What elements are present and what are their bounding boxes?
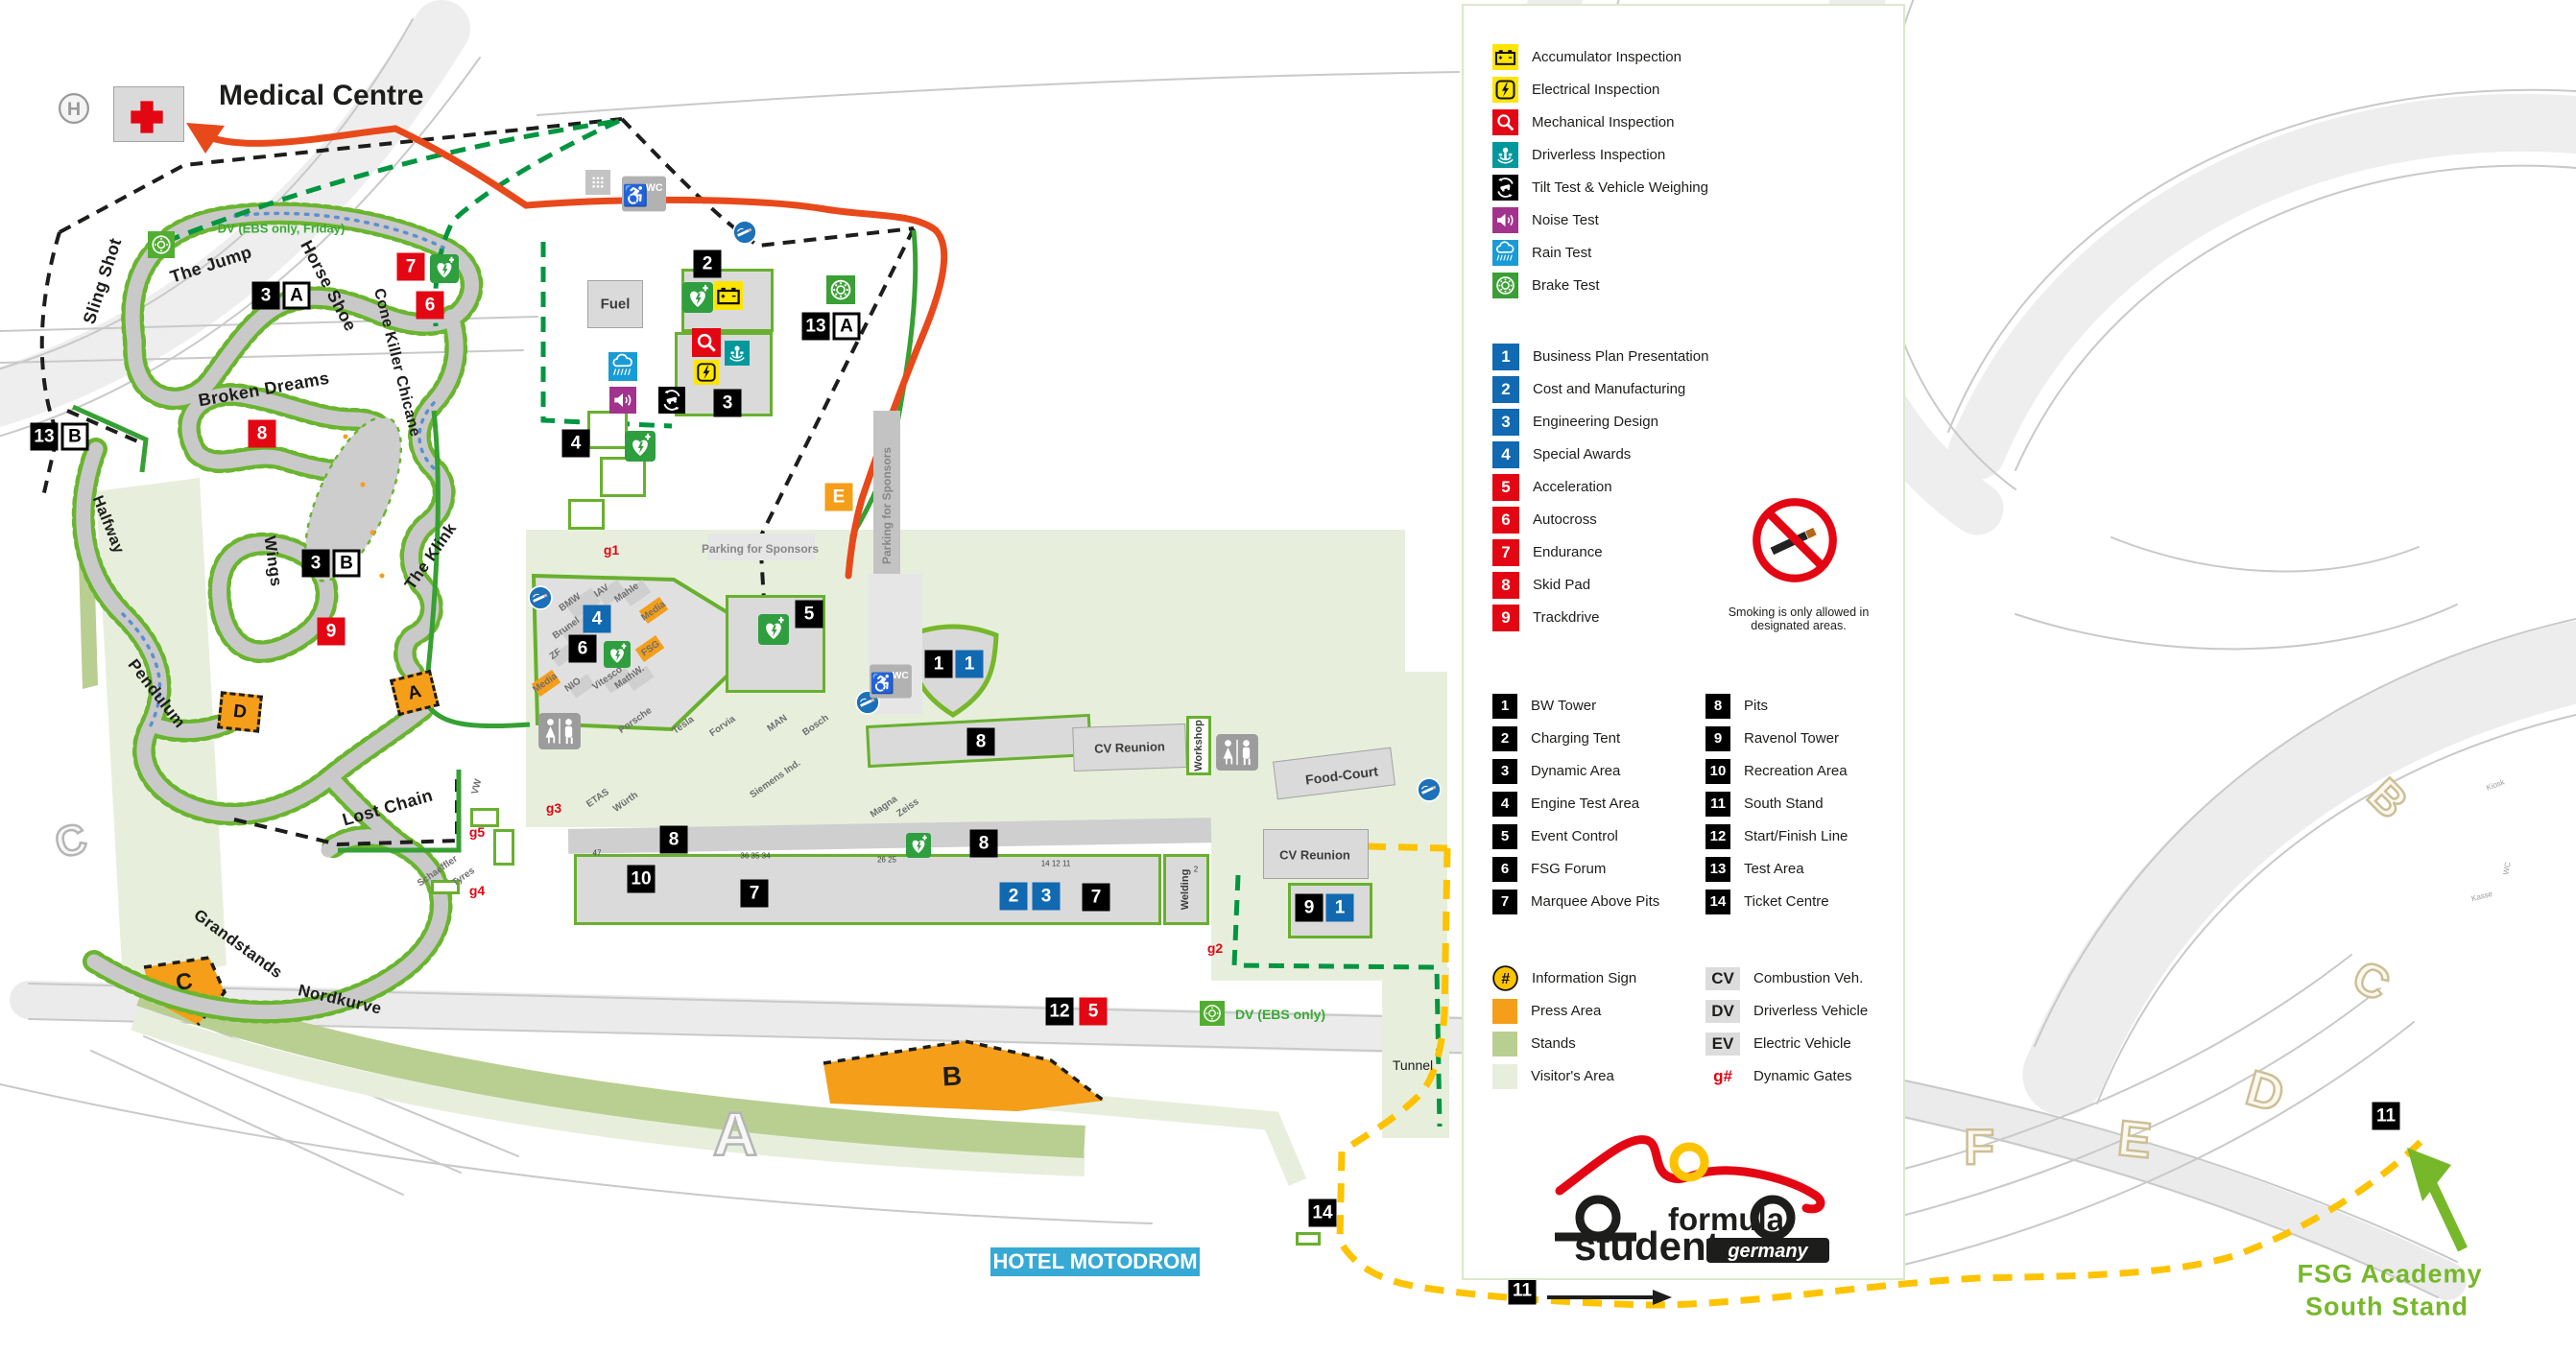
legend-test-accumulator-inspection-label: Accumulator Inspection <box>1532 49 1682 65</box>
legend-location-start-finish-line: 12Start/Finish Line <box>1705 823 1848 849</box>
map-badge-9: 9 <box>318 618 346 646</box>
legend-area-information-sign-label: Information Sign <box>1532 970 1636 986</box>
badge-part-5: 5 <box>1080 998 1108 1026</box>
noise-icon <box>1492 207 1518 233</box>
sponsor-label-forvia: Forvia <box>708 714 738 739</box>
smoking-note: Smoking is only allowed in designated ar… <box>1698 605 1899 632</box>
badge-part-4: 4 <box>584 605 611 633</box>
map-badge-3-b: 3B <box>302 550 361 578</box>
dv-icon <box>1200 1001 1225 1026</box>
badge-part-6: 6 <box>569 635 597 663</box>
map-badge-8: 8 <box>970 830 998 858</box>
badge-part-13: 13 <box>802 313 830 341</box>
legend-location-fsg-forum-label: FSG Forum <box>1531 861 1606 877</box>
badge-part-6: 6 <box>417 292 444 320</box>
location-number-8: 8 <box>1705 694 1730 719</box>
event-number-8: 8 <box>1492 572 1519 599</box>
map-badge-3-a: 3A <box>252 282 311 310</box>
defib-icon <box>758 614 789 645</box>
location-number-5: 5 <box>1492 824 1517 849</box>
legend-test-rain-test-label: Rain Test <box>1532 245 1591 261</box>
info-icon: # <box>1492 965 1518 991</box>
badge-part-2: 2 <box>1000 883 1028 911</box>
legend-area-stands-label: Stands <box>1531 1035 1576 1052</box>
badge-part-10: 10 <box>628 866 656 893</box>
label-lost-chain: Lost Chain <box>340 786 435 831</box>
label-broken-dreams: Broken Dreams <box>197 368 331 412</box>
legend-location-test-area: 13Test Area <box>1705 856 1848 882</box>
legend-event-trackdrive: 9Trackdrive <box>1492 605 1708 630</box>
map-badge-4: 4 <box>562 430 590 458</box>
map-badge-12: 12 <box>1046 998 1074 1026</box>
badge-part-8: 8 <box>660 826 688 854</box>
academy-label-2: South Stand <box>2305 1293 2469 1322</box>
location-number-1: 1 <box>1492 694 1517 719</box>
defib-icon <box>682 282 713 313</box>
map-badge-5: 5 <box>796 601 823 629</box>
badge-part-7: 7 <box>741 880 769 908</box>
section-letter-f: F <box>1964 1123 1994 1173</box>
map-badge-14: 14 <box>1309 1199 1337 1227</box>
section-letter-c: C <box>2345 954 2396 1010</box>
tilt-icon <box>1492 175 1518 201</box>
brake-icon <box>1492 273 1518 298</box>
gate-area-a: A <box>390 670 440 716</box>
label-parking-for-sponsors: Parking for Sponsors <box>880 447 894 564</box>
legend-location-pits: 8Pits <box>1705 693 1848 719</box>
pit-number-14-12-11: 14 12 11 <box>1041 860 1071 868</box>
location-number-11: 11 <box>1705 792 1730 817</box>
fsg-logo: formula student germany <box>1545 1119 1843 1263</box>
badge-part-3: 3 <box>302 550 330 578</box>
location-number-2: 2 <box>1492 726 1517 751</box>
event-number-3: 3 <box>1492 409 1519 436</box>
location-number-9: 9 <box>1705 726 1730 751</box>
label-wings: Wings <box>259 534 285 587</box>
mechanical-icon <box>692 328 721 357</box>
sponsor-label-porsche: Porsche <box>617 705 655 736</box>
map-badge-4: 4 <box>584 605 611 633</box>
section-letter-e: E <box>2115 1113 2154 1166</box>
logo-germany: germany <box>1727 1241 1808 1262</box>
badge-part-11: 11 <box>1509 1277 1537 1305</box>
legend-test-tilt-test-vehicle-weighing-label: Tilt Test & Vehicle Weighing <box>1532 179 1708 196</box>
badge-part-2: 2 <box>694 250 722 278</box>
accumulator-icon <box>714 281 743 310</box>
dynamic-gate-g1: g1 <box>604 542 619 558</box>
defib-icon <box>430 254 459 283</box>
legend-location-dynamic-area: 3Dynamic Area <box>1492 758 1659 784</box>
badge-part-14: 14 <box>1309 1199 1337 1227</box>
map-badge-5: 5 <box>1080 998 1108 1026</box>
legend-abbr-electric-vehicle-label: Electric Vehicle <box>1753 1035 1851 1052</box>
map-badge-1-1: 11 <box>925 651 984 678</box>
shower-icon <box>585 170 610 195</box>
rain-icon <box>608 352 637 381</box>
section-letter-a: A <box>713 1104 757 1165</box>
legend-event-business-plan-presentation: 1Business Plan Presentation <box>1492 344 1708 369</box>
svg-text:♿: ♿ <box>871 672 894 695</box>
label-kasse: Kasse <box>2470 890 2493 903</box>
legend-location-start-finish-line-label: Start/Finish Line <box>1744 828 1848 844</box>
legend-location-marquee-above-pits-label: Marquee Above Pits <box>1531 893 1659 910</box>
academy-label-1: FSG Academy <box>2297 1260 2482 1290</box>
dynamic-gate-g3: g3 <box>546 800 561 816</box>
legend-location-ravenol-tower-label: Ravenol Tower <box>1744 730 1839 747</box>
legend-event-engineering-design-label: Engineering Design <box>1533 414 1658 430</box>
dv-icon <box>148 231 175 258</box>
legend-event-trackdrive-label: Trackdrive <box>1533 609 1599 626</box>
map-badge-13-b: 13B <box>31 423 89 451</box>
sponsor-label-magna: Magna <box>869 794 899 819</box>
tunnel-label: Tunnel <box>1393 1057 1433 1073</box>
location-number-6: 6 <box>1492 857 1517 882</box>
medical-centre-label: Medical Centre <box>219 80 423 112</box>
gate-area-d: D <box>217 691 263 732</box>
defib-icon <box>625 431 656 462</box>
label-dv-ebs-only: DV (EBS only) <box>1235 1007 1325 1022</box>
label-fuel: Fuel <box>601 297 631 313</box>
driverless-icon <box>1492 142 1518 168</box>
no-smoking-icon <box>1752 497 1838 583</box>
legend-area-press-area-label: Press Area <box>1531 1003 1601 1019</box>
abbr-key-ev: EV <box>1705 1033 1740 1056</box>
event-number-7: 7 <box>1492 539 1519 566</box>
label-the-jump: The Jump <box>168 242 254 287</box>
legend-location-recreation-area: 10Recreation Area <box>1705 758 1848 784</box>
label-parking-for-sponsors: Parking for Sponsors <box>702 542 819 556</box>
legend-abbr-dynamic-gates-label: Dynamic Gates <box>1753 1068 1852 1084</box>
map-badge-7: 7 <box>1083 884 1110 912</box>
label-cv-reunion: CV Reunion <box>1279 848 1350 863</box>
legend-event-autocross: 6Autocross <box>1492 507 1708 533</box>
legend-event-autocross-label: Autocross <box>1533 511 1597 528</box>
legend-tests-section: Accumulator InspectionElectrical Inspect… <box>1492 44 1708 305</box>
sponsor-label-bosch: Bosch <box>800 713 830 739</box>
legend-location-ticket-centre: 14Ticket Centre <box>1705 889 1848 914</box>
legend-test-mechanical-inspection-label: Mechanical Inspection <box>1532 114 1674 131</box>
legend-event-special-awards: 4Special Awards <box>1492 441 1708 467</box>
sponsor-label-zeiss: Zeiss <box>894 796 920 819</box>
legend-areas-section: #Information SignPress AreaStandsVisitor… <box>1492 965 1636 1096</box>
label-wc: WC <box>2501 862 2512 876</box>
map-badge-11: 11 <box>1509 1277 1537 1305</box>
defib-icon <box>604 641 631 668</box>
badge-part-1: 1 <box>1326 894 1354 922</box>
legend-location-engine-test-area-label: Engine Test Area <box>1531 795 1639 812</box>
badge-part-8: 8 <box>249 420 276 448</box>
defib-icon <box>906 833 931 858</box>
badge-part-1: 1 <box>956 651 984 678</box>
legend-test-electrical-inspection: Electrical Inspection <box>1492 77 1708 103</box>
map-badge-8: 8 <box>660 826 688 854</box>
legend-abbr-driverless-vehicle: DVDriverless Vehicle <box>1705 998 1868 1024</box>
section-letter-b: B <box>942 1062 963 1090</box>
location-number-12: 12 <box>1705 824 1730 849</box>
dynamic-gate-g4: g4 <box>469 883 485 898</box>
map-badge-13-a: 13A <box>802 313 861 341</box>
label-the-klink: The Klink <box>401 519 461 593</box>
logo-student: student <box>1574 1223 1720 1263</box>
building <box>600 457 646 497</box>
map-badge-10: 10 <box>628 866 656 893</box>
sponsor-label-tesla: Tesla <box>671 714 697 736</box>
map-badge-3: 3 <box>1033 883 1061 911</box>
badge-part-b: B <box>61 423 89 451</box>
legend-abbr-combustion-veh: CVCombustion Veh. <box>1705 965 1868 991</box>
legend-event-acceleration-label: Acceleration <box>1533 479 1612 495</box>
location-number-14: 14 <box>1705 890 1730 914</box>
section-letter-c: C <box>51 818 90 866</box>
map-badge-7: 7 <box>397 253 425 281</box>
legend-event-endurance-label: Endurance <box>1533 544 1603 560</box>
legend-area-press-area: Press Area <box>1492 998 1636 1024</box>
building <box>493 829 514 866</box>
map-badge-2: 2 <box>1000 883 1028 911</box>
electrical-icon <box>1492 77 1518 103</box>
svg-text:#: # <box>1501 971 1510 987</box>
badge-part-a: A <box>283 282 311 310</box>
smoking-icon <box>1417 777 1442 802</box>
badge-part-5: 5 <box>796 601 823 629</box>
abbr-key-cv: CV <box>1705 967 1740 990</box>
legend-test-electrical-inspection-label: Electrical Inspection <box>1532 82 1659 98</box>
badge-part-8: 8 <box>970 830 998 858</box>
map-badge-3: 3 <box>714 390 742 417</box>
map-badge-9-1: 91 <box>1296 894 1354 922</box>
map-badge-2: 2 <box>694 250 722 278</box>
legend-abbr-electric-vehicle: EVElectric Vehicle <box>1705 1031 1868 1056</box>
legend-location-south-stand-label: South Stand <box>1744 795 1824 812</box>
dynamic-gate-g5: g5 <box>469 824 485 840</box>
map-overlay: Sling ShotThe JumpHorse ShoeBroken Dream… <box>0 0 2576 1353</box>
building <box>568 499 605 530</box>
badge-part-e: E <box>825 484 853 511</box>
badge-part-b: B <box>333 550 361 578</box>
event-number-1: 1 <box>1492 344 1519 370</box>
legend-event-endurance: 7Endurance <box>1492 539 1708 565</box>
electrical-icon <box>694 360 719 385</box>
badge-part-7: 7 <box>397 253 425 281</box>
svg-text:WC: WC <box>893 671 910 681</box>
legend-event-cost-and-manufacturing-label: Cost and Manufacturing <box>1533 381 1685 397</box>
abbr-key-dv: DV <box>1705 1000 1740 1023</box>
badge-part-3: 3 <box>252 282 280 310</box>
label-halfway: Halfway <box>88 493 127 556</box>
building <box>1296 1232 1321 1246</box>
pit-number-2: 2 <box>1194 866 1198 874</box>
swatch-press-area <box>1492 999 1517 1024</box>
tilt-icon <box>658 387 685 414</box>
building <box>574 854 1161 925</box>
legend-test-mechanical-inspection: Mechanical Inspection <box>1492 109 1708 135</box>
legend-event-engineering-design: 3Engineering Design <box>1492 409 1708 435</box>
legend-location-bw-tower-label: BW Tower <box>1531 698 1596 714</box>
section-letter-b: B <box>2359 771 2415 827</box>
brake-icon <box>826 275 855 304</box>
badge-part-11: 11 <box>2373 1103 2400 1130</box>
wc-icon: ♿WC <box>870 665 912 699</box>
pit-number-26-25: 26 25 <box>877 856 896 865</box>
redcross-icon <box>128 98 166 136</box>
event-number-6: 6 <box>1492 507 1519 534</box>
legend-event-acceleration: 5Acceleration <box>1492 474 1708 500</box>
sponsor-label-man: MAN <box>766 713 790 734</box>
legend-location-pits-label: Pits <box>1744 698 1768 714</box>
pit-number-47: 47 <box>593 849 602 858</box>
swatch-stands <box>1492 1032 1517 1056</box>
location-number-13: 13 <box>1705 857 1730 882</box>
map-badge-8: 8 <box>967 728 995 756</box>
legend-area-visitor-s-area: Visitor's Area <box>1492 1063 1636 1089</box>
legend-location-charging-tent-label: Charging Tent <box>1531 730 1620 747</box>
label-kiosk: Kiosk <box>2485 777 2505 792</box>
legend-abbr-combustion-veh-label: Combustion Veh. <box>1753 970 1863 986</box>
legend-test-brake-test-label: Brake Test <box>1532 277 1600 294</box>
badge-part-8: 8 <box>967 728 995 756</box>
legend-location-ravenol-tower: 9Ravenol Tower <box>1705 725 1848 751</box>
legend-test-noise-test: Noise Test <box>1492 207 1708 233</box>
label-sling-shot: Sling Shot <box>80 236 127 327</box>
swatch-visitor-s-area <box>1492 1064 1517 1089</box>
event-number-5: 5 <box>1492 474 1519 501</box>
hotel-motodrom-label: HOTEL MOTODROM <box>990 1247 1200 1276</box>
smoking-icon <box>528 585 553 610</box>
toilets-icon <box>1216 734 1258 771</box>
legend-location-event-control: 5Event Control <box>1492 823 1659 849</box>
legend-location-charging-tent: 2Charging Tent <box>1492 725 1659 751</box>
map-badge-8: 8 <box>249 420 276 448</box>
legend-event-special-awards-label: Special Awards <box>1533 446 1631 463</box>
sponsor-label-siemens-ind: Siemens Ind. <box>749 758 803 800</box>
sponsor-label-vw: VW <box>470 778 485 795</box>
legend-location-south-stand: 11South Stand <box>1705 791 1848 817</box>
event-number-9: 9 <box>1492 605 1519 631</box>
legend-test-noise-test-label: Noise Test <box>1532 212 1599 228</box>
legend-location-fsg-forum: 6FSG Forum <box>1492 856 1659 882</box>
mechanical-icon <box>1492 109 1518 135</box>
svg-text:WC: WC <box>646 182 663 194</box>
toilets-icon <box>538 713 581 749</box>
map-badge-6: 6 <box>417 292 444 320</box>
helipad-icon: H <box>58 92 90 125</box>
noise-icon <box>609 387 636 414</box>
event-number-2: 2 <box>1492 376 1519 403</box>
legend-location-dynamic-area-label: Dynamic Area <box>1531 763 1620 779</box>
dynamic-gate-g2: g2 <box>1207 940 1223 956</box>
section-letter-d: D <box>2241 1063 2289 1121</box>
badge-part-a: A <box>833 313 861 341</box>
legend-event-business-plan-presentation-label: Business Plan Presentation <box>1533 348 1708 365</box>
legend-area-stands: Stands <box>1492 1031 1636 1056</box>
label-cv-reunion: CV Reunion <box>1094 739 1165 756</box>
legend-locations-left: 1BW Tower2Charging Tent3Dynamic Area4Eng… <box>1492 693 1659 921</box>
legend-area-information-sign: #Information Sign <box>1492 965 1636 991</box>
legend-location-event-control-label: Event Control <box>1531 828 1618 844</box>
legend-area-visitor-s-area-label: Visitor's Area <box>1531 1068 1614 1084</box>
pit-number-36-35-34: 36 35 34 <box>740 852 770 861</box>
badge-part-9: 9 <box>1296 894 1324 922</box>
badge-part-1: 1 <box>925 651 953 678</box>
legend-locations-right: 8Pits9Ravenol Tower10Recreation Area11So… <box>1705 693 1848 921</box>
legend-test-rain-test: Rain Test <box>1492 240 1708 266</box>
sponsor-label-etas: ETAS <box>584 787 611 810</box>
legend-test-tilt-test-vehicle-weighing: Tilt Test & Vehicle Weighing <box>1492 175 1708 201</box>
legend-event-skid-pad-label: Skid Pad <box>1533 577 1590 593</box>
fsg-event-map: Sling ShotThe JumpHorse ShoeBroken Dream… <box>0 0 2576 1353</box>
event-number-4: 4 <box>1492 441 1519 468</box>
legend-abbr-dynamic-gates: g#Dynamic Gates <box>1705 1063 1868 1089</box>
legend-events-section: 1Business Plan Presentation2Cost and Man… <box>1492 344 1708 637</box>
legend-test-brake-test: Brake Test <box>1492 273 1708 298</box>
legend-test-driverless-inspection-label: Driverless Inspection <box>1532 147 1665 163</box>
building <box>587 411 628 449</box>
legend-location-marquee-above-pits: 7Marquee Above Pits <box>1492 889 1659 914</box>
location-number-7: 7 <box>1492 890 1517 914</box>
badge-part-13: 13 <box>31 423 59 451</box>
rain-icon <box>1492 240 1518 266</box>
badge-part-3: 3 <box>1033 883 1061 911</box>
accumulator-icon <box>1492 44 1518 70</box>
legend-abbr-driverless-vehicle-label: Driverless Vehicle <box>1753 1003 1868 1019</box>
legend-event-skid-pad: 8Skid Pad <box>1492 572 1708 598</box>
map-badge-6: 6 <box>569 635 597 663</box>
abbr-key-g: g# <box>1705 1065 1740 1088</box>
legend-location-ticket-centre-label: Ticket Centre <box>1744 893 1829 910</box>
badge-part-4: 4 <box>562 430 590 458</box>
legend-location-engine-test-area: 4Engine Test Area <box>1492 791 1659 817</box>
legend-abbr-section: CVCombustion Veh.DVDriverless VehicleEVE… <box>1705 965 1868 1096</box>
label-dv-ebs-only-friday: DV (EBS only, Friday) <box>218 222 346 236</box>
wc-icon: ♿WC <box>622 177 666 212</box>
badge-part-12: 12 <box>1046 998 1074 1026</box>
label-grandstands: Grandstands <box>190 906 286 983</box>
svg-text:♿: ♿ <box>622 183 648 207</box>
badge-part-9: 9 <box>318 618 346 646</box>
legend-panel: Accumulator InspectionElectrical Inspect… <box>1462 4 1905 1280</box>
location-number-3: 3 <box>1492 759 1517 784</box>
legend-location-bw-tower: 1BW Tower <box>1492 693 1659 719</box>
label-pendulum: Pendulum <box>124 655 189 732</box>
badge-part-3: 3 <box>714 390 742 417</box>
section-letter-c: C <box>175 970 195 995</box>
legend-event-cost-and-manufacturing: 2Cost and Manufacturing <box>1492 376 1708 402</box>
smoking-icon <box>732 220 757 245</box>
legend-test-accumulator-inspection: Accumulator Inspection <box>1492 44 1708 70</box>
label-welding: Welding <box>1180 869 1191 911</box>
map-badge-11: 11 <box>2373 1103 2400 1130</box>
location-number-10: 10 <box>1705 759 1730 784</box>
location-number-4: 4 <box>1492 792 1517 817</box>
svg-text:H: H <box>67 99 81 120</box>
sponsor-label-w-rth: Würth <box>611 790 640 815</box>
driverless-icon <box>725 341 750 366</box>
label-nordkurve: Nordkurve <box>297 981 384 1018</box>
legend-test-driverless-inspection: Driverless Inspection <box>1492 142 1708 168</box>
map-badge-e: E <box>825 484 853 511</box>
legend-location-test-area-label: Test Area <box>1744 861 1804 877</box>
legend-location-recreation-area-label: Recreation Area <box>1744 763 1848 779</box>
map-badge-7: 7 <box>741 880 769 908</box>
label-workshop: Workshop <box>1193 720 1205 771</box>
badge-part-7: 7 <box>1083 884 1110 912</box>
